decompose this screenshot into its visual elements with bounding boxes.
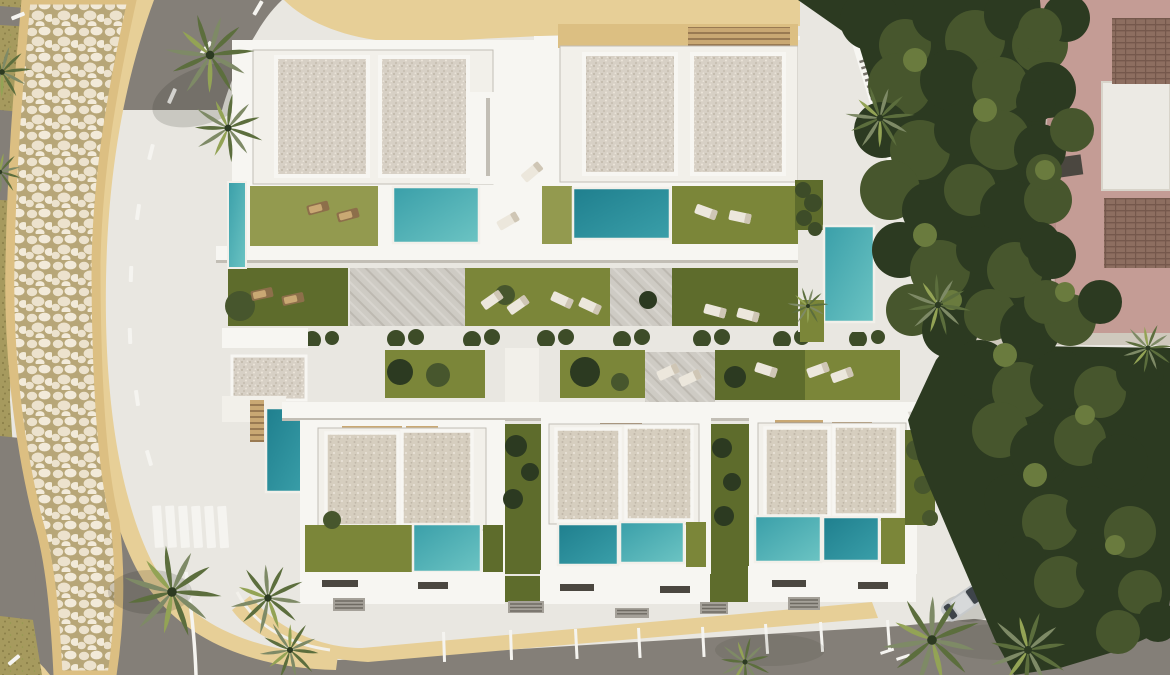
pool bbox=[558, 524, 618, 565]
tiled-roof bbox=[1112, 18, 1170, 84]
roof-panel bbox=[834, 426, 898, 515]
roof-panel bbox=[326, 433, 398, 526]
terrace-lawn bbox=[672, 268, 802, 326]
pool bbox=[573, 188, 670, 239]
pool bbox=[393, 187, 479, 243]
villa-block-b bbox=[496, 24, 800, 248]
roof-panel bbox=[556, 429, 620, 521]
pool bbox=[413, 524, 481, 572]
roof-panel bbox=[765, 428, 829, 516]
pool bbox=[755, 516, 821, 562]
facade-seam bbox=[486, 98, 490, 176]
garden-bush bbox=[323, 511, 341, 529]
render-canvas bbox=[0, 0, 1170, 675]
garage-door bbox=[250, 400, 264, 442]
garage-roof bbox=[232, 356, 306, 400]
villa-c-lawn bbox=[305, 525, 413, 575]
pool bbox=[824, 226, 874, 322]
roof-terrace bbox=[1102, 82, 1170, 190]
aerial-villa-render bbox=[0, 0, 1170, 675]
villa-block-a bbox=[228, 40, 534, 268]
entry-garden bbox=[710, 574, 748, 602]
pool bbox=[620, 522, 684, 563]
bottom-villa-row bbox=[282, 402, 938, 618]
roof-panel bbox=[380, 57, 468, 176]
lawn-strip bbox=[881, 518, 905, 564]
garage-parapet bbox=[222, 328, 308, 348]
roof-panel bbox=[626, 427, 692, 520]
villa-block-d bbox=[541, 418, 711, 576]
terrace-lawn bbox=[465, 268, 610, 326]
lawn-strip bbox=[483, 525, 503, 573]
villa-a-east-volume bbox=[470, 92, 532, 184]
villa-block-c bbox=[300, 420, 505, 578]
roof-panel bbox=[692, 54, 784, 174]
lawn-strip bbox=[686, 522, 706, 567]
entry-garden bbox=[505, 576, 540, 602]
roof-panel bbox=[584, 54, 676, 174]
pool bbox=[228, 182, 246, 268]
roof-panel bbox=[276, 57, 368, 176]
pool bbox=[823, 517, 879, 561]
terrace-pavers bbox=[350, 268, 465, 326]
tiled-roof bbox=[1104, 198, 1170, 268]
villa-block-e bbox=[749, 414, 917, 574]
roof-panel bbox=[402, 431, 472, 525]
lawn-strip bbox=[542, 186, 572, 244]
